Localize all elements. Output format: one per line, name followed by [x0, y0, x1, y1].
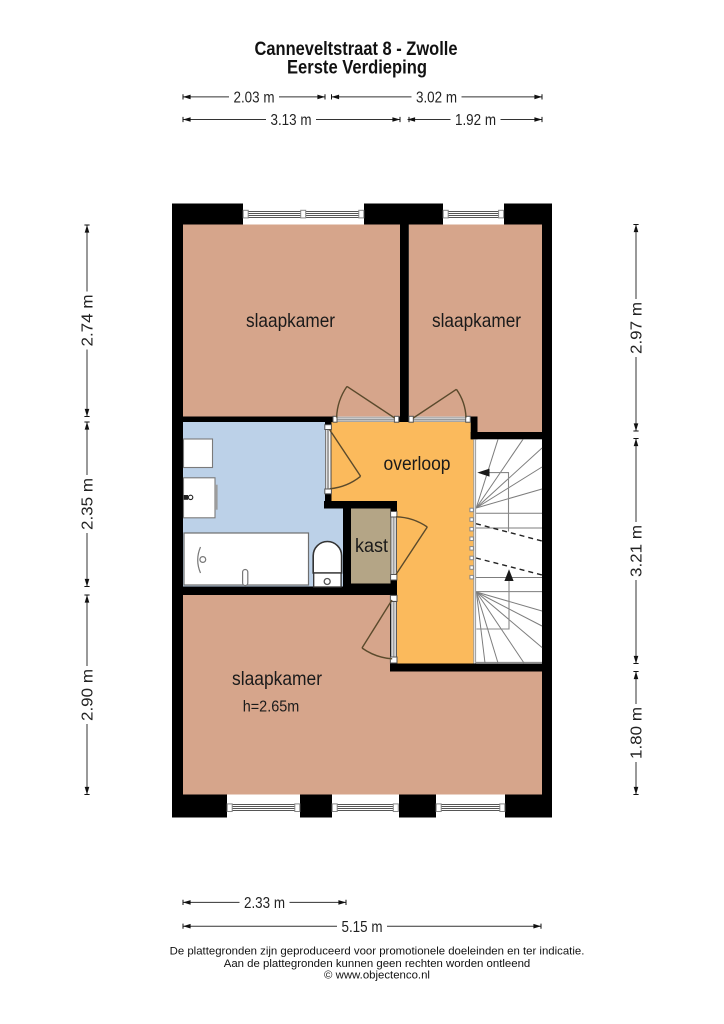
- svg-text:3.13 m: 3.13 m: [271, 112, 312, 129]
- svg-text:Aan de plattegronden kunnen ge: Aan de plattegronden kunnen geen rechten…: [224, 958, 531, 970]
- svg-text:Eerste Verdieping: Eerste Verdieping: [287, 58, 427, 79]
- svg-text:3.21 m: 3.21 m: [629, 525, 646, 577]
- svg-text:© www.objectenco.nl: © www.objectenco.nl: [324, 969, 430, 981]
- svg-text:3.02 m: 3.02 m: [416, 90, 457, 107]
- svg-text:1.80 m: 1.80 m: [629, 707, 646, 759]
- svg-text:kast: kast: [355, 535, 389, 557]
- svg-text:2.97 m: 2.97 m: [629, 302, 646, 354]
- svg-text:h=2.65m: h=2.65m: [243, 699, 300, 716]
- svg-text:2.03 m: 2.03 m: [234, 90, 275, 107]
- svg-text:2.33 m: 2.33 m: [244, 895, 285, 912]
- svg-text:2.90 m: 2.90 m: [80, 669, 97, 721]
- svg-text:De plattegronden zijn geproduc: De plattegronden zijn geproduceerd voor …: [170, 946, 585, 958]
- svg-text:slaapkamer: slaapkamer: [432, 310, 521, 332]
- svg-text:2.74 m: 2.74 m: [80, 295, 97, 347]
- svg-text:slaapkamer: slaapkamer: [232, 668, 322, 690]
- svg-text:overloop: overloop: [384, 453, 451, 475]
- svg-text:slaapkamer: slaapkamer: [246, 310, 335, 332]
- svg-text:1.92 m: 1.92 m: [455, 112, 496, 129]
- svg-text:2.35 m: 2.35 m: [80, 478, 97, 530]
- svg-text:5.15 m: 5.15 m: [342, 919, 383, 936]
